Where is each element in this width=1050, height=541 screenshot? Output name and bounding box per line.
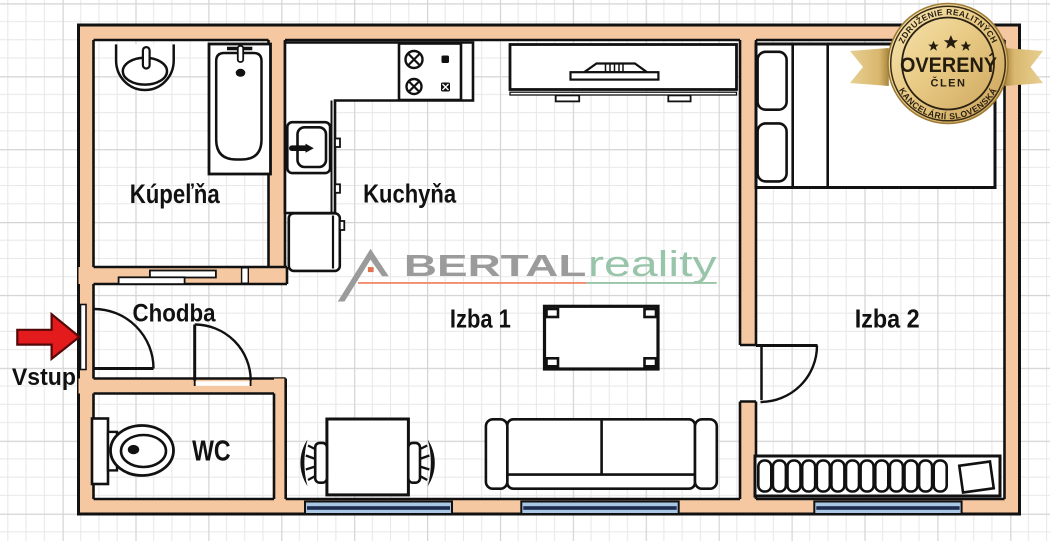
svg-text:BERTAL: BERTAL bbox=[404, 249, 586, 283]
svg-text:Izba 1: Izba 1 bbox=[450, 303, 511, 333]
svg-text:Izba 2: Izba 2 bbox=[855, 304, 920, 334]
svg-text:ČLEN: ČLEN bbox=[931, 77, 967, 90]
svg-text:Vstup: Vstup bbox=[12, 364, 76, 391]
svg-text:WC: WC bbox=[192, 435, 231, 467]
svg-text:OVERENÝ: OVERENÝ bbox=[900, 52, 997, 77]
svg-text:Chodba: Chodba bbox=[133, 300, 217, 328]
svg-text:reality: reality bbox=[588, 244, 718, 285]
svg-text:Kuchyňa: Kuchyňa bbox=[363, 179, 456, 209]
svg-text:Kúpeľňa: Kúpeľňa bbox=[130, 179, 221, 209]
